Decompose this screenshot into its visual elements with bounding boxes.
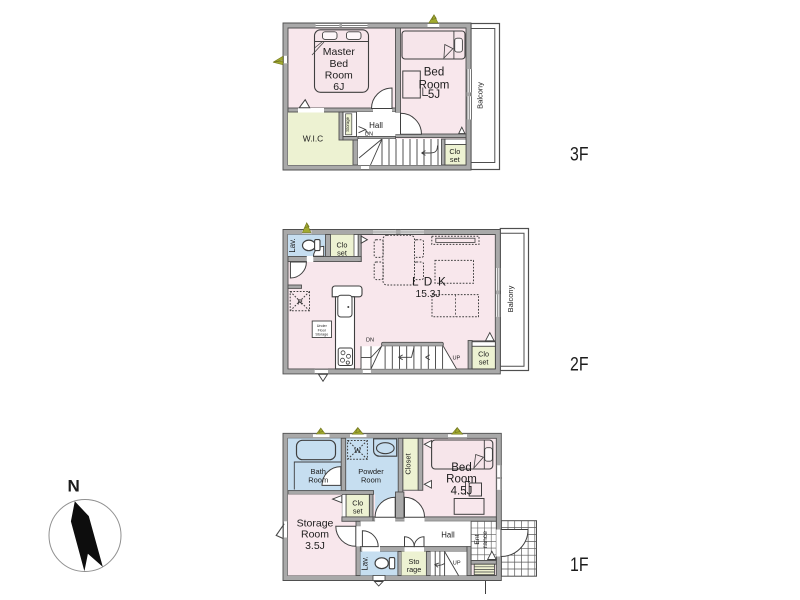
svg-text:rage: rage (407, 565, 422, 574)
svg-text:3.5J: 3.5J (305, 540, 325, 552)
svg-text:Hall: Hall (441, 531, 455, 540)
svg-text:N: N (68, 477, 80, 496)
svg-text:DN: DN (366, 338, 374, 344)
svg-text:rance: rance (482, 531, 489, 548)
svg-text:W.I.C: W.I.C (303, 134, 323, 144)
svg-text:5J: 5J (428, 89, 440, 101)
svg-text:L D K: L D K (412, 275, 447, 289)
svg-text:2F: 2F (570, 354, 589, 376)
svg-text:UP: UP (453, 356, 461, 362)
svg-text:Storage: Storage (345, 116, 350, 131)
svg-text:Ent: Ent (474, 534, 481, 544)
svg-text:Balcony: Balcony (476, 82, 485, 109)
svg-text:15.3J: 15.3J (416, 289, 441, 300)
svg-text:W: W (354, 448, 361, 455)
svg-text:Room: Room (361, 476, 381, 485)
svg-text:R: R (297, 298, 302, 307)
svg-text:set: set (353, 507, 363, 516)
svg-text:UP: UP (453, 560, 461, 566)
svg-text:3F: 3F (570, 144, 589, 166)
svg-text:Room: Room (446, 474, 477, 486)
svg-text:Room: Room (325, 70, 353, 82)
svg-text:Closet: Closet (404, 452, 413, 474)
svg-text:set: set (479, 358, 489, 367)
svg-text:Room: Room (301, 529, 329, 541)
svg-text:set: set (450, 155, 460, 164)
svg-text:set: set (337, 248, 347, 257)
svg-text:Master: Master (323, 46, 356, 58)
svg-text:Storage: Storage (297, 517, 334, 529)
svg-text:Room: Room (308, 476, 328, 485)
svg-text:Bed: Bed (424, 67, 444, 79)
svg-text:Bed: Bed (329, 58, 348, 70)
svg-text:6J: 6J (333, 81, 344, 93)
svg-text:Storage: Storage (315, 333, 328, 337)
svg-text:1F: 1F (570, 554, 589, 576)
svg-text:Lav.: Lav. (288, 238, 297, 252)
svg-text:Hall: Hall (369, 121, 383, 130)
svg-text:Bed: Bed (451, 462, 471, 474)
svg-text:DN: DN (365, 132, 373, 138)
svg-text:Balcony: Balcony (506, 285, 515, 312)
svg-text:4.5J: 4.5J (451, 485, 473, 497)
svg-text:Lav.: Lav. (361, 556, 370, 570)
